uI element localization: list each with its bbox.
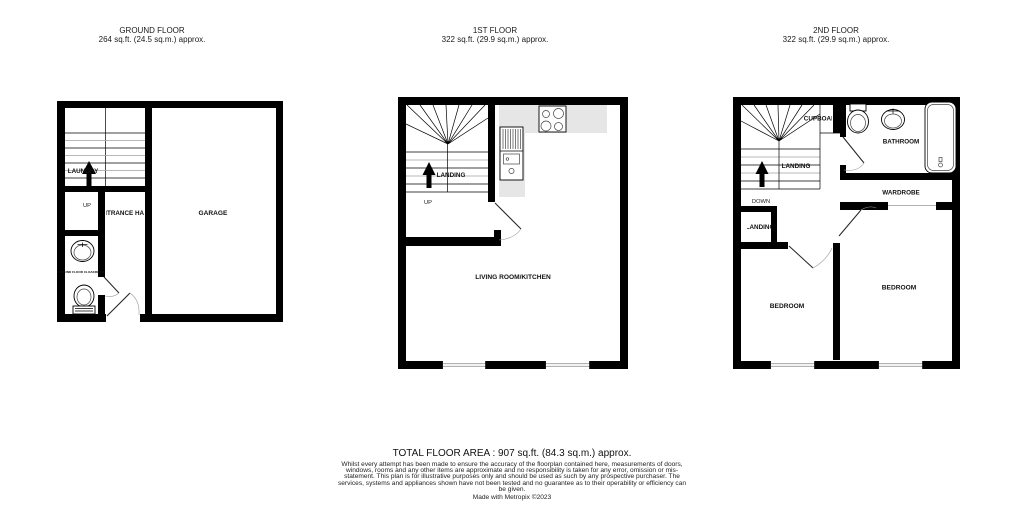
wall: [840, 173, 952, 180]
metropix-credit: Made with Metropix ©2023: [412, 494, 612, 501]
floorplan-page: GROUND FLOOR 264 sq.ft. (24.5 sq.m.) app…: [0, 0, 1024, 512]
label-living-room-kitchen: LIVING ROOM/KITCHEN: [475, 274, 551, 281]
sink: [71, 241, 94, 262]
label-garage: GARAGE: [199, 210, 229, 217]
wall: [840, 105, 846, 137]
label-bedroom-right: BEDROOM: [882, 285, 917, 292]
label-cloakroom: GROUND FLOOR CLOAKROOM: [58, 270, 105, 274]
wall: [406, 237, 500, 246]
second-floor-plan: CUPBOARD LANDING DOWN LANDING BATHROOM W…: [733, 97, 960, 369]
wall: [65, 186, 152, 192]
label-up: UP: [83, 203, 91, 209]
window: [442, 361, 487, 369]
window: [878, 361, 924, 369]
total-floor-area: TOTAL FLOOR AREA : 907 sq.ft. (84.3 sq.m…: [312, 448, 712, 459]
wall: [833, 105, 841, 133]
hob: [539, 106, 566, 132]
label-laundry: LAUNDRY: [68, 168, 99, 175]
wall: [833, 243, 840, 360]
window: [545, 361, 591, 369]
label-landing: LANDING: [782, 163, 811, 170]
window: [770, 361, 816, 369]
ground-floor-plan: LAUNDRY UP ENTRANCE HALL GARAGE GROUND F…: [57, 101, 283, 322]
label-bathroom: BATHROOM: [883, 139, 920, 146]
wall: [98, 192, 105, 232]
wall: [840, 202, 888, 210]
kitchen-sink-unit: [500, 127, 523, 180]
floorplan-canvas: LAUNDRY UP ENTRANCE HALL GARAGE GROUND F…: [0, 0, 1024, 512]
wall: [494, 230, 501, 246]
label-down: DOWN: [752, 199, 770, 205]
label-landing: LANDING: [437, 172, 466, 179]
wall: [936, 202, 952, 210]
wall: [488, 105, 495, 202]
toilet: [848, 104, 869, 133]
first-floor-plan: LANDING UP LIVING ROOM/KITCHEN: [398, 97, 628, 369]
disclaimer-text: Whilst every attempt has been made to en…: [337, 462, 687, 493]
wall: [65, 230, 105, 236]
floor-interior: [65, 108, 276, 314]
wall: [145, 108, 152, 314]
label-up: UP: [424, 200, 432, 206]
toilet: [73, 285, 95, 314]
label-bedroom-left: BEDROOM: [770, 303, 805, 310]
label-wardrobe: WARDROBE: [882, 190, 919, 197]
wall: [98, 295, 105, 314]
wall: [741, 242, 788, 249]
label-entrance-hall: ENTRANCE HALL: [98, 210, 152, 217]
bathtub: [925, 102, 956, 173]
label-landing-small: LANDING: [746, 224, 775, 231]
